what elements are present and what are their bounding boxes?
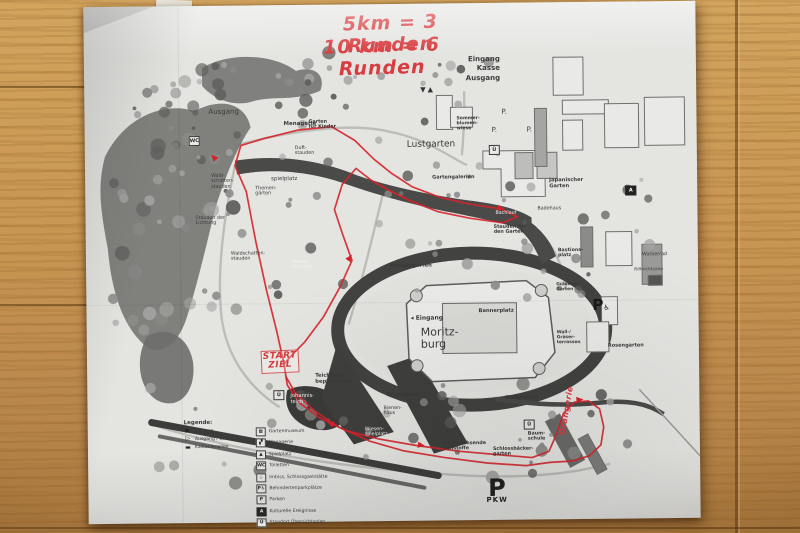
map-label: Bastions- platz [558, 248, 583, 259]
map-label: nachwachsende Rohstoffe [443, 441, 486, 452]
map-label: P. [492, 127, 497, 135]
map-label: Garten für Kinder [309, 120, 336, 131]
map-label: Stauden für den Garten [494, 225, 526, 236]
legend-item: ♨Imbiss, Schlossgaststätte [256, 472, 327, 482]
legend-item-label: Ausgang / Übergang [195, 436, 242, 441]
avenue-line-icon: ▬ [184, 445, 192, 451]
legend-item: P♿Behindertenparkplätze [256, 484, 327, 494]
map-label: Rosengarten [608, 343, 644, 349]
map-label: P. [527, 127, 532, 135]
legend-item: ÜStandort Übersichtsplan [257, 518, 328, 528]
legend-item: ▬Kastanienallee [184, 444, 242, 451]
map-label: Lustgarten [407, 139, 456, 150]
map-label: Japanischer Garten [549, 178, 583, 190]
legend-item: ▶Eingang [184, 428, 242, 435]
legend-item-label: Behindertenparkplätze [269, 486, 322, 492]
entrance-arrow-icon: ▶ [184, 428, 192, 434]
legend-left-column: ▶Eingang▷Ausgang / Übergang▬Kastanienall… [184, 428, 243, 531]
wood-plank-seam [735, 0, 738, 533]
legend-item-label: Imbiss, Schlossgaststätte [269, 474, 327, 480]
location-ue-icon: Ü [257, 518, 267, 527]
parking-sub: PKW [486, 498, 507, 504]
map-icon-ü: Ü [273, 390, 284, 400]
map-label: Bienen- haus [384, 406, 402, 417]
legend-item-label: Standort Übersichtsplan [270, 520, 326, 526]
wheelchair-icon: ♿ [603, 304, 609, 312]
map-icon-wc: WC [189, 136, 200, 146]
map-label: Wellgraben [505, 395, 538, 401]
legend-item: ▦Gartenmuseum [256, 427, 327, 437]
map-label: Themen- gärten [255, 186, 276, 197]
map-label: Stauden der Lichtung [196, 216, 226, 227]
legend-item-label: Toiletten [269, 463, 289, 468]
map-label: Wall-/ Gräser- terrassen [557, 331, 581, 346]
paper-map: AusgangMenagerieDuft- staudenspielplatzT… [83, 1, 700, 524]
map-label: Wiesen- spielplatz [365, 427, 388, 438]
map-label: Bachlauf [495, 211, 516, 217]
legend-item-label: Kulturelle Ereignisse [270, 509, 317, 514]
legend-item-label: Kastanienallee [195, 445, 229, 450]
legend-item: PParken [256, 495, 327, 505]
map-icon-ü: Ü [524, 420, 535, 430]
handwritten-start-ziel: START ZIEL [261, 349, 300, 374]
map-label: Sommer- blumen- wiese [456, 116, 479, 132]
map-label: Johannis- teich [290, 394, 314, 406]
paper-corner-fold [83, 6, 153, 33]
map-icon-ü: Ü [489, 145, 500, 155]
parking-icon: P [256, 496, 266, 505]
legend-item-label: Parken [269, 497, 285, 502]
map-label: Baum- schule [528, 431, 546, 442]
map-label: P. [501, 109, 506, 117]
legend-item: ▷Ausgang / Übergang [184, 436, 242, 443]
map-label: Teichrand- bepflanzung [315, 373, 351, 385]
wc-icon: WC [256, 461, 266, 470]
legend-title: Legende: [184, 419, 327, 427]
legend-item: AKulturelle Ereignisse [257, 506, 328, 516]
legend-item-label: Eingang [195, 428, 214, 433]
map-label: Wasserrad [642, 252, 667, 258]
map-label: Röhrichtzone [634, 268, 663, 273]
map-label: ◂ Eingang [411, 315, 444, 322]
map-label: Obstgarten [386, 393, 419, 399]
map-label: Rosen/ Stauden [292, 260, 312, 271]
map-label: Güldener Garten [556, 283, 579, 293]
map-label: Bannerplatz [478, 309, 513, 315]
culture-a-icon: A [257, 507, 267, 516]
map-icon-a: A [625, 185, 636, 195]
legend-item-label: Spielplatz [269, 452, 291, 457]
car-parking-icon: P PKW [486, 479, 508, 504]
imbiss-icon: ♨ [256, 473, 266, 482]
map-label: Schlossbäcker- garten [493, 447, 534, 458]
legend-item-label: Menagerie [269, 440, 293, 445]
map-label: spielplatz [271, 176, 297, 182]
parking-disabled-icon: P♿ [256, 484, 266, 493]
playground-icon: ▲ [256, 450, 266, 459]
exit-arrow-icon: ▷ [184, 436, 192, 442]
map-label: Duft- stauden [295, 146, 315, 157]
map-legend: Legende: ▶Eingang▷Ausgang / Übergang▬Kas… [184, 419, 328, 531]
map-label: Ausgang [208, 109, 239, 117]
legend-item: ▲Spielplatz [256, 449, 327, 459]
handwritten-distance-line2: 10 km = 6 Runden [291, 33, 472, 82]
map-label: Moritz- burg [421, 326, 459, 351]
wood-plank-seam [0, 304, 90, 306]
legend-right-column: ▦Gartenmuseum▞Menagerie▲SpielplatzWCToil… [256, 427, 328, 530]
wood-plank-seam [0, 86, 90, 88]
map-label: Badehaus [537, 206, 561, 212]
map-label: Waldschatten- stauden [231, 251, 265, 262]
wood-plank-seam [0, 527, 800, 529]
map-label: Gartengalerien [432, 175, 475, 181]
map-label: Wald- schatten- stauden [211, 174, 234, 190]
entrance-gate-icons: ▼▲ [420, 86, 435, 94]
legend-item-label: Gartenmuseum [269, 429, 305, 434]
garden-museum-icon: ▦ [256, 427, 266, 436]
map-label: Kräutergarten [390, 264, 432, 270]
menagerie-icon: ▞ [256, 439, 266, 448]
legend-item: WCToiletten [256, 461, 327, 471]
legend-item: ▞Menagerie [256, 438, 327, 448]
